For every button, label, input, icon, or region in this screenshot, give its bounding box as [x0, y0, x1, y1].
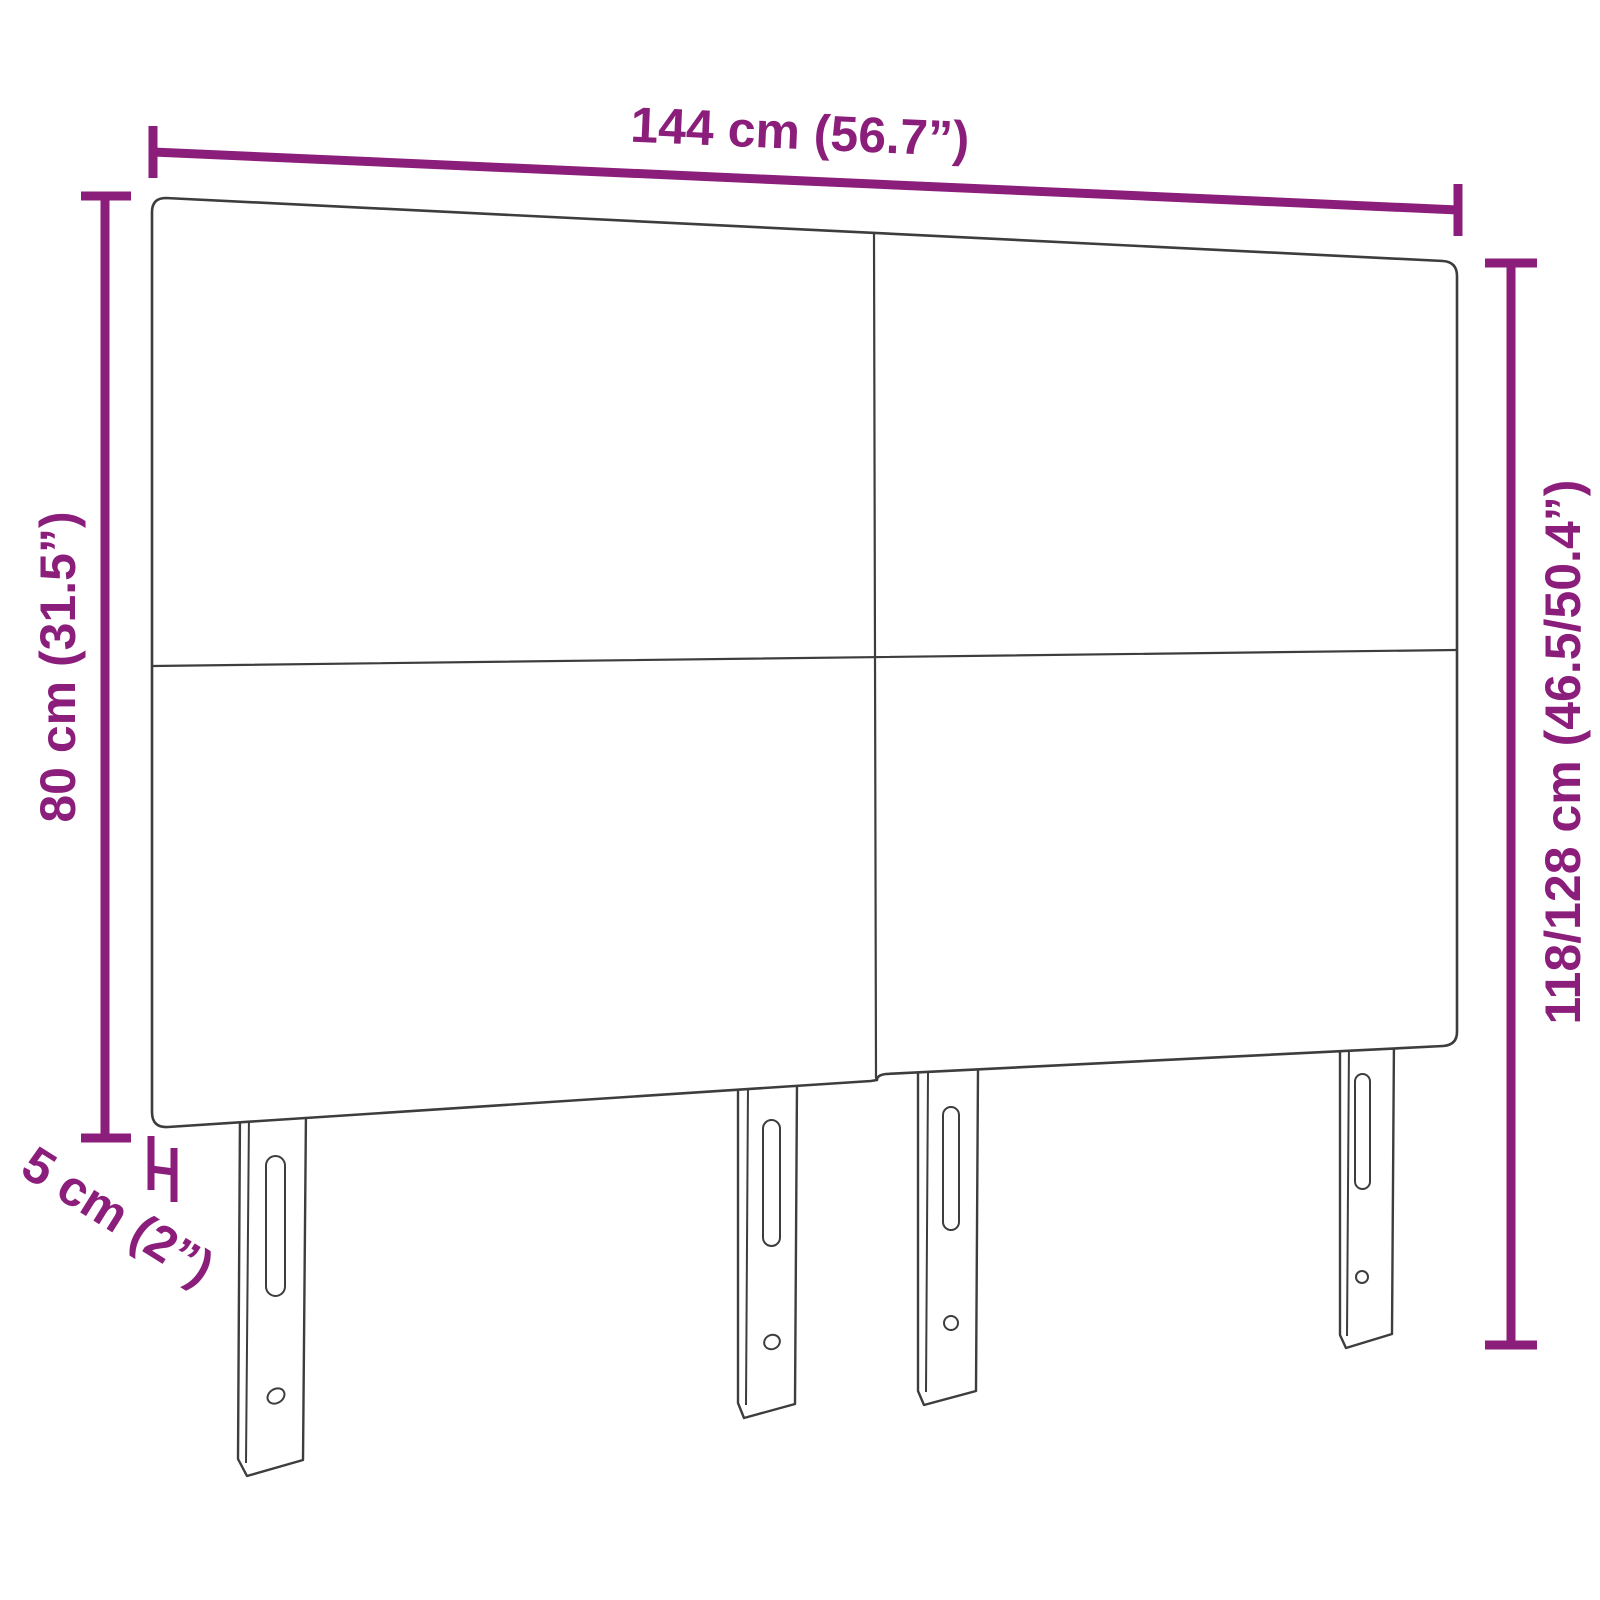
- panel-height-dimension: 80 cm (31.5”): [30, 196, 131, 1138]
- panel-height-dimension-label: 80 cm (31.5”): [30, 511, 86, 822]
- leg-3: [918, 1069, 978, 1405]
- total-height-dimension: 118/128 cm (46.5/50.4”): [1485, 263, 1591, 1345]
- total-height-dimension-label: 118/128 cm (46.5/50.4”): [1535, 480, 1591, 1025]
- leg-4: [1340, 1037, 1394, 1348]
- product-dimension-diagram: 144 cm (56.7”) 80 cm (31.5”) 118/128 cm …: [0, 0, 1600, 1600]
- depth-dimension-line: [151, 1169, 174, 1172]
- depth-dimension-label: 5 cm (2”): [12, 1136, 223, 1297]
- width-dimension-line: [153, 152, 1458, 210]
- leg-2: [738, 1081, 797, 1418]
- depth-dimension: 5 cm (2”): [12, 1136, 223, 1297]
- leg-1: [238, 1109, 306, 1476]
- width-dimension-label: 144 cm (56.7”): [629, 97, 970, 168]
- headboard: [152, 198, 1457, 1127]
- headboard-dimension-drawing: 144 cm (56.7”) 80 cm (31.5”) 118/128 cm …: [0, 0, 1600, 1600]
